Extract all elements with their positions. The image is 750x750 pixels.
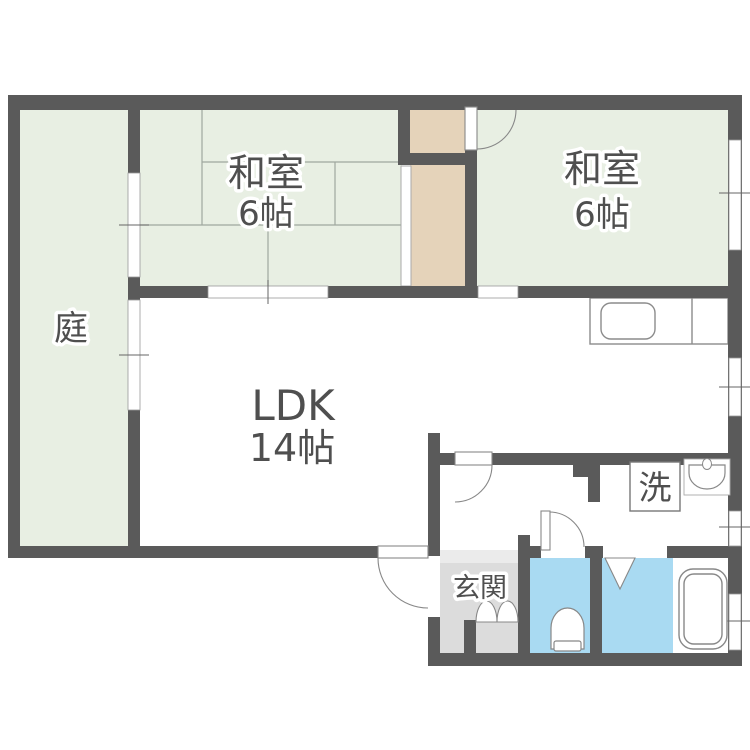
wall-entrance-west (428, 615, 440, 666)
toilet-door (541, 511, 584, 550)
entrance-label: 玄関 (453, 573, 507, 604)
room2-size-label: 6帖 (574, 195, 630, 235)
wall-toilet-bath (590, 548, 602, 666)
toilet-seat (554, 641, 581, 651)
entrance-step (440, 550, 518, 563)
wall-north (8, 95, 742, 110)
toilet-fixture (551, 608, 584, 651)
closet-upper (410, 110, 465, 153)
basin-faucet-icon (703, 459, 712, 470)
bathtub (679, 569, 727, 649)
ldk-label: LDK (251, 381, 336, 430)
kitchen-counter (590, 298, 728, 344)
kitchen-sink (601, 303, 655, 339)
front-door-leaf (378, 546, 428, 558)
wash-basin (684, 459, 730, 496)
wall-west (8, 95, 20, 558)
hallway-door-leaf (455, 452, 492, 465)
front-door (378, 546, 428, 608)
hallway-door (455, 452, 492, 502)
bath-window (729, 594, 741, 650)
closet-sliding-door (401, 166, 411, 286)
room1-label: 和室 (228, 151, 304, 195)
wall-hall-west (428, 433, 440, 558)
bath-door-opening (603, 546, 667, 558)
room2-opening (478, 286, 518, 298)
room2-window (729, 140, 741, 250)
floorplan-svg: 庭 和室 6帖 和室 6帖 LDK 14帖 玄関 洗 (0, 0, 750, 750)
front-door-arc (378, 558, 428, 608)
laundry-label: 洗 (639, 468, 672, 507)
closet-lower (410, 165, 465, 286)
toilet-door-leaf (541, 511, 550, 550)
wall-entrance-toilet (518, 535, 530, 666)
wall-stub-b (588, 465, 600, 502)
ldk-size-label: 14帖 (249, 426, 335, 470)
front-door-opening (428, 556, 440, 617)
wall-south-west (8, 546, 380, 558)
room1-size-label: 6帖 (238, 194, 294, 234)
room2-label: 和室 (564, 147, 640, 191)
wall-cabinet-stub (464, 620, 476, 666)
toilet-door-arc (549, 512, 584, 547)
hallway-door-arc (455, 465, 492, 502)
washroom-window (729, 511, 741, 546)
garden-label: 庭 (54, 309, 88, 349)
closet-door-leaf (465, 107, 477, 150)
